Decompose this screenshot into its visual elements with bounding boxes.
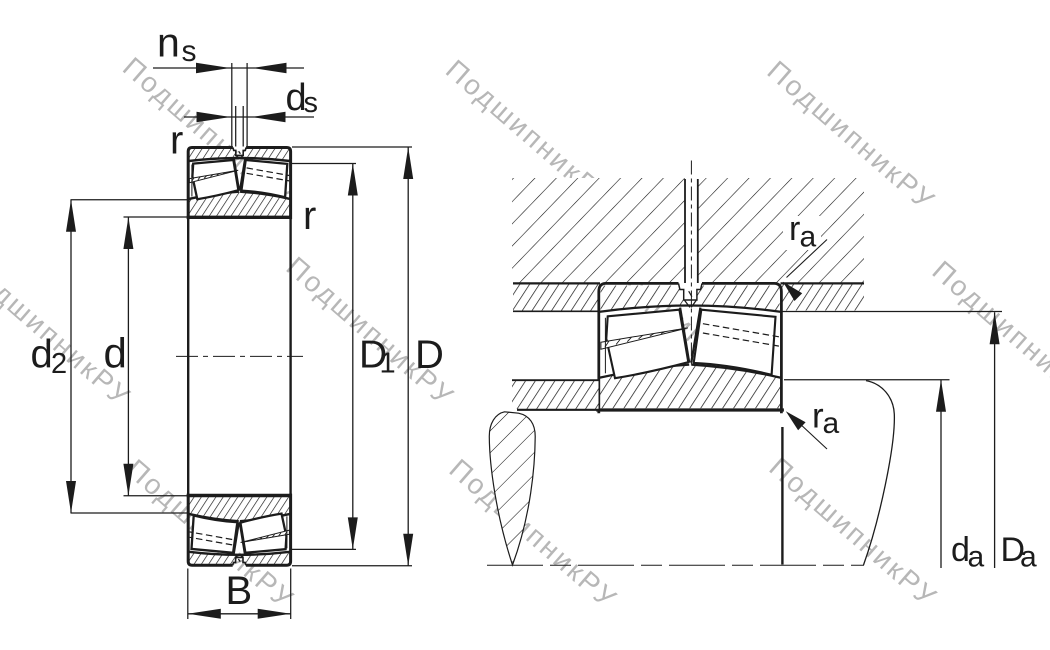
svg-text:2: 2 bbox=[51, 348, 67, 380]
svg-text:a: a bbox=[1020, 541, 1037, 574]
svg-text:a: a bbox=[823, 407, 840, 440]
svg-text:1: 1 bbox=[380, 348, 396, 380]
svg-text:d: d bbox=[104, 330, 127, 377]
svg-text:d: d bbox=[31, 333, 53, 377]
svg-text:s: s bbox=[182, 35, 197, 68]
svg-text:s: s bbox=[304, 87, 319, 119]
svg-text:a: a bbox=[800, 220, 817, 253]
svg-text:D: D bbox=[415, 333, 444, 377]
svg-text:r: r bbox=[303, 194, 316, 238]
svg-text:a: a bbox=[968, 541, 985, 574]
svg-text:r: r bbox=[170, 119, 183, 163]
svg-text:B: B bbox=[226, 569, 253, 613]
svg-text:n: n bbox=[157, 20, 180, 66]
